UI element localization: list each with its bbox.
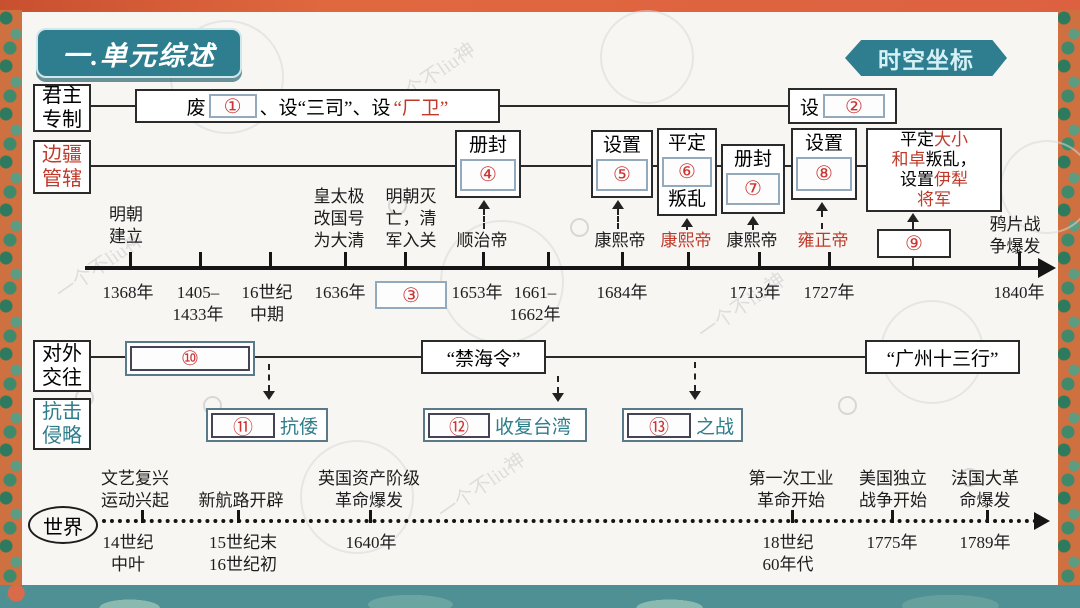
year-16c-mid: 16世纪 中期: [237, 282, 297, 326]
arrow-shaft: [617, 209, 624, 229]
top-border-decoration: [0, 0, 1080, 12]
year-1727: 1727年: [799, 282, 859, 304]
timeline-tick: [344, 252, 347, 267]
year-1405-1433: 1405– 1433年: [168, 282, 228, 326]
row-label-foreign: 对外 交往: [33, 340, 91, 392]
arrow-head: [681, 218, 693, 227]
world-year-1640: 1640年: [336, 532, 406, 554]
blank-6: ⑥: [662, 157, 712, 187]
slide-canvas: 一个不liu神 一个不liu神 一个不liu神 一个不liu神 一个不liu神 …: [0, 0, 1080, 608]
resist-label: 收复台湾: [495, 412, 571, 439]
frontier-box-subtitle: 叛乱: [668, 187, 706, 213]
year-1653: 1653年: [447, 282, 507, 304]
timeline-arrowhead: [1038, 258, 1056, 278]
world-year-1789: 1789年: [950, 532, 1020, 554]
section-title-banner: 一.单元综述: [36, 28, 242, 78]
timespace-banner: 时空坐标: [845, 40, 1007, 76]
arrow-shaft: [483, 209, 490, 229]
arrow-head: [747, 216, 759, 225]
timeline-tick: [687, 252, 690, 267]
year-1636: 1636年: [310, 282, 370, 304]
frontier-box-title: 册封: [734, 147, 772, 173]
arrow-up-yongzheng: [816, 202, 828, 229]
yili-text: 平定: [900, 130, 934, 149]
blank-1: ①: [209, 94, 257, 118]
event-ming-fall: 明朝灭 亡，清 军入关: [382, 186, 440, 252]
arrow-down-3: [689, 362, 701, 400]
world-year-15-16c: 15世纪末 16世纪初: [198, 532, 288, 576]
left-border-decoration: [0, 10, 22, 588]
frontier-box-cefeng7: 册封 ⑦: [721, 144, 785, 214]
yili-text-red: 伊犁: [934, 170, 968, 189]
row-label-resist: 抗击 侵略: [33, 398, 91, 450]
timeline-tick: [199, 252, 202, 267]
connector-line: [500, 105, 788, 107]
timeline-tick: [482, 252, 485, 267]
frontier-box-cefeng4: 册封 ④: [455, 130, 521, 198]
resist-label: 抗倭: [280, 412, 318, 439]
frontier-box-pingding6: 平定 ⑥ 叛乱: [657, 128, 717, 216]
arrow-shaft: [557, 376, 564, 393]
world-year-18c60s: 18世纪 60年代: [753, 532, 823, 576]
arrow-down-2: [552, 376, 564, 402]
connector-line: [91, 105, 135, 107]
blank-9: ⑨: [877, 229, 951, 258]
foreign-box-sea-ban: “禁海令”: [421, 340, 546, 374]
world-arrowhead: [1034, 512, 1050, 530]
arrow-up-kangxi3: [747, 216, 759, 230]
blank-7: ⑦: [726, 173, 780, 205]
yili-line4: 将军: [917, 190, 951, 210]
year-1840: 1840年: [989, 282, 1049, 304]
arrow-up-kangxi2: [681, 218, 693, 230]
yili-text-red: 和卓: [892, 150, 926, 169]
arrow-head: [689, 391, 701, 400]
timeline-tick: [1018, 252, 1021, 267]
row-label-monarchy: 君主 专制: [33, 84, 91, 132]
frontier-box-title: 平定: [668, 131, 706, 157]
timeline-tick: [621, 252, 624, 267]
monarchy-text-she: 设: [800, 93, 819, 120]
arrow-head: [552, 393, 564, 402]
monarchy-text-mid: 、设“三司”、设: [260, 93, 391, 120]
frontier-box-title: 册封: [469, 133, 507, 159]
arrow-up-9: [907, 213, 919, 229]
arrow-head: [907, 213, 919, 222]
blank-13: ⑬: [627, 413, 691, 438]
yili-text: 叛乱，: [926, 150, 977, 169]
main-timeline: [85, 266, 1042, 270]
year-1661-1662: 1661– 1662年: [505, 282, 565, 326]
world-event-english-revolution: 英国资产阶级 革命爆发: [314, 468, 424, 512]
timeline-tick: [828, 252, 831, 267]
event-huangtaiji: 皇太极 改国号 为大清: [310, 186, 368, 252]
emperor-kangxi-3: 康熙帝: [724, 230, 780, 252]
world-event-american-independence: 美国独立 战争开始: [843, 468, 943, 512]
resist-box-taiwan: ⑫ 收复台湾: [423, 408, 587, 442]
world-year-1775: 1775年: [857, 532, 927, 554]
world-event-renaissance: 文艺复兴 运动兴起: [85, 468, 185, 512]
resist-label: 之战: [696, 412, 734, 439]
blank-11: ⑪: [211, 413, 275, 438]
watermark-circle: [600, 10, 694, 104]
year-1368: 1368年: [98, 282, 158, 304]
arrow-shaft: [694, 362, 701, 391]
yili-line3: 设置伊犁: [900, 170, 968, 190]
monarchy-text-changwei: “厂卫”: [394, 93, 449, 120]
blank-12: ⑫: [428, 413, 490, 438]
timeline-tick: [547, 252, 550, 267]
world-event-industrial-revolution: 第一次工业 革命开始: [741, 468, 841, 512]
foreign-box-10-outer: ⑩: [125, 341, 255, 376]
resist-box-battle: ⑬ 之战: [622, 408, 743, 442]
row-label-frontier: 边疆 管辖: [33, 140, 91, 194]
world-event-new-routes: 新航路开辟: [191, 490, 291, 512]
watermark-text: 一个不liu神: [691, 264, 790, 346]
world-year-14c: 14世纪 中叶: [93, 532, 163, 576]
monarchy-measures-box: 废 ① 、设“三司”、设 “厂卫”: [135, 89, 500, 123]
arrow-head: [816, 202, 828, 211]
year-1713: 1713年: [725, 282, 785, 304]
world-timeline: [102, 519, 1038, 523]
arrow-head: [263, 391, 275, 400]
watermark-dot: [838, 396, 857, 415]
watermark-dot: [570, 218, 589, 237]
blank-2: ②: [823, 94, 885, 118]
arrow-shaft: [912, 222, 919, 229]
arrow-head: [478, 200, 490, 209]
timeline-tick: [758, 252, 761, 267]
yili-text: 设置: [900, 170, 934, 189]
foreign-box-canton: “广州十三行”: [865, 340, 1020, 374]
watermark-text: 一个不liu神: [431, 444, 530, 526]
yili-text-red: 大小: [934, 130, 968, 149]
emperor-kangxi-1: 康熙帝: [592, 230, 648, 252]
right-border-decoration: [1058, 10, 1080, 588]
year-1684: 1684年: [592, 282, 652, 304]
timeline-tick: [404, 252, 407, 267]
world-event-french-revolution: 法国大革 命爆发: [935, 468, 1035, 512]
arrow-shaft: [821, 211, 828, 229]
blank-8: ⑧: [796, 157, 852, 191]
emperor-kangxi-2: 康熙帝: [658, 230, 714, 252]
arrow-head: [612, 200, 624, 209]
arrow-down-1: [263, 364, 275, 400]
event-opium-war: 鸦片战 争爆发: [985, 214, 1045, 258]
resist-box-wokou: ⑪ 抗倭: [206, 408, 328, 442]
yili-line2: 和卓叛乱，: [892, 150, 977, 170]
arrow-up-shunzhi: [478, 200, 490, 229]
emperor-yongzheng: 雍正帝: [795, 230, 851, 252]
event-ming-founded: 明朝 建立: [98, 204, 154, 248]
monarchy-text-fei: 废: [187, 93, 206, 120]
frontier-box-title: 设置: [603, 133, 641, 159]
blank-10: ⑩: [130, 346, 250, 371]
frontier-box-shezhi5: 设置 ⑤: [591, 130, 653, 198]
blank-5: ⑤: [596, 159, 648, 191]
blank-3: ③: [375, 281, 447, 309]
frontier-box-yili: 平定大小 和卓叛乱， 设置伊犁 将军: [866, 128, 1002, 212]
timeline-tick: [129, 252, 132, 267]
arrow-shaft: [268, 364, 275, 391]
monarchy-she-box: 设 ②: [788, 88, 897, 124]
bottom-border-decoration: [0, 585, 1080, 608]
blank-4: ④: [460, 159, 516, 191]
yili-line1: 平定大小: [900, 130, 968, 150]
emperor-shunzhi: 顺治帝: [454, 230, 510, 252]
frontier-box-title: 设置: [805, 131, 843, 157]
frontier-box-shezhi8: 设置 ⑧: [791, 128, 857, 200]
timeline-tick: [269, 252, 272, 267]
arrow-up-kangxi1: [612, 200, 624, 229]
yili-text-red: 将军: [917, 190, 951, 209]
